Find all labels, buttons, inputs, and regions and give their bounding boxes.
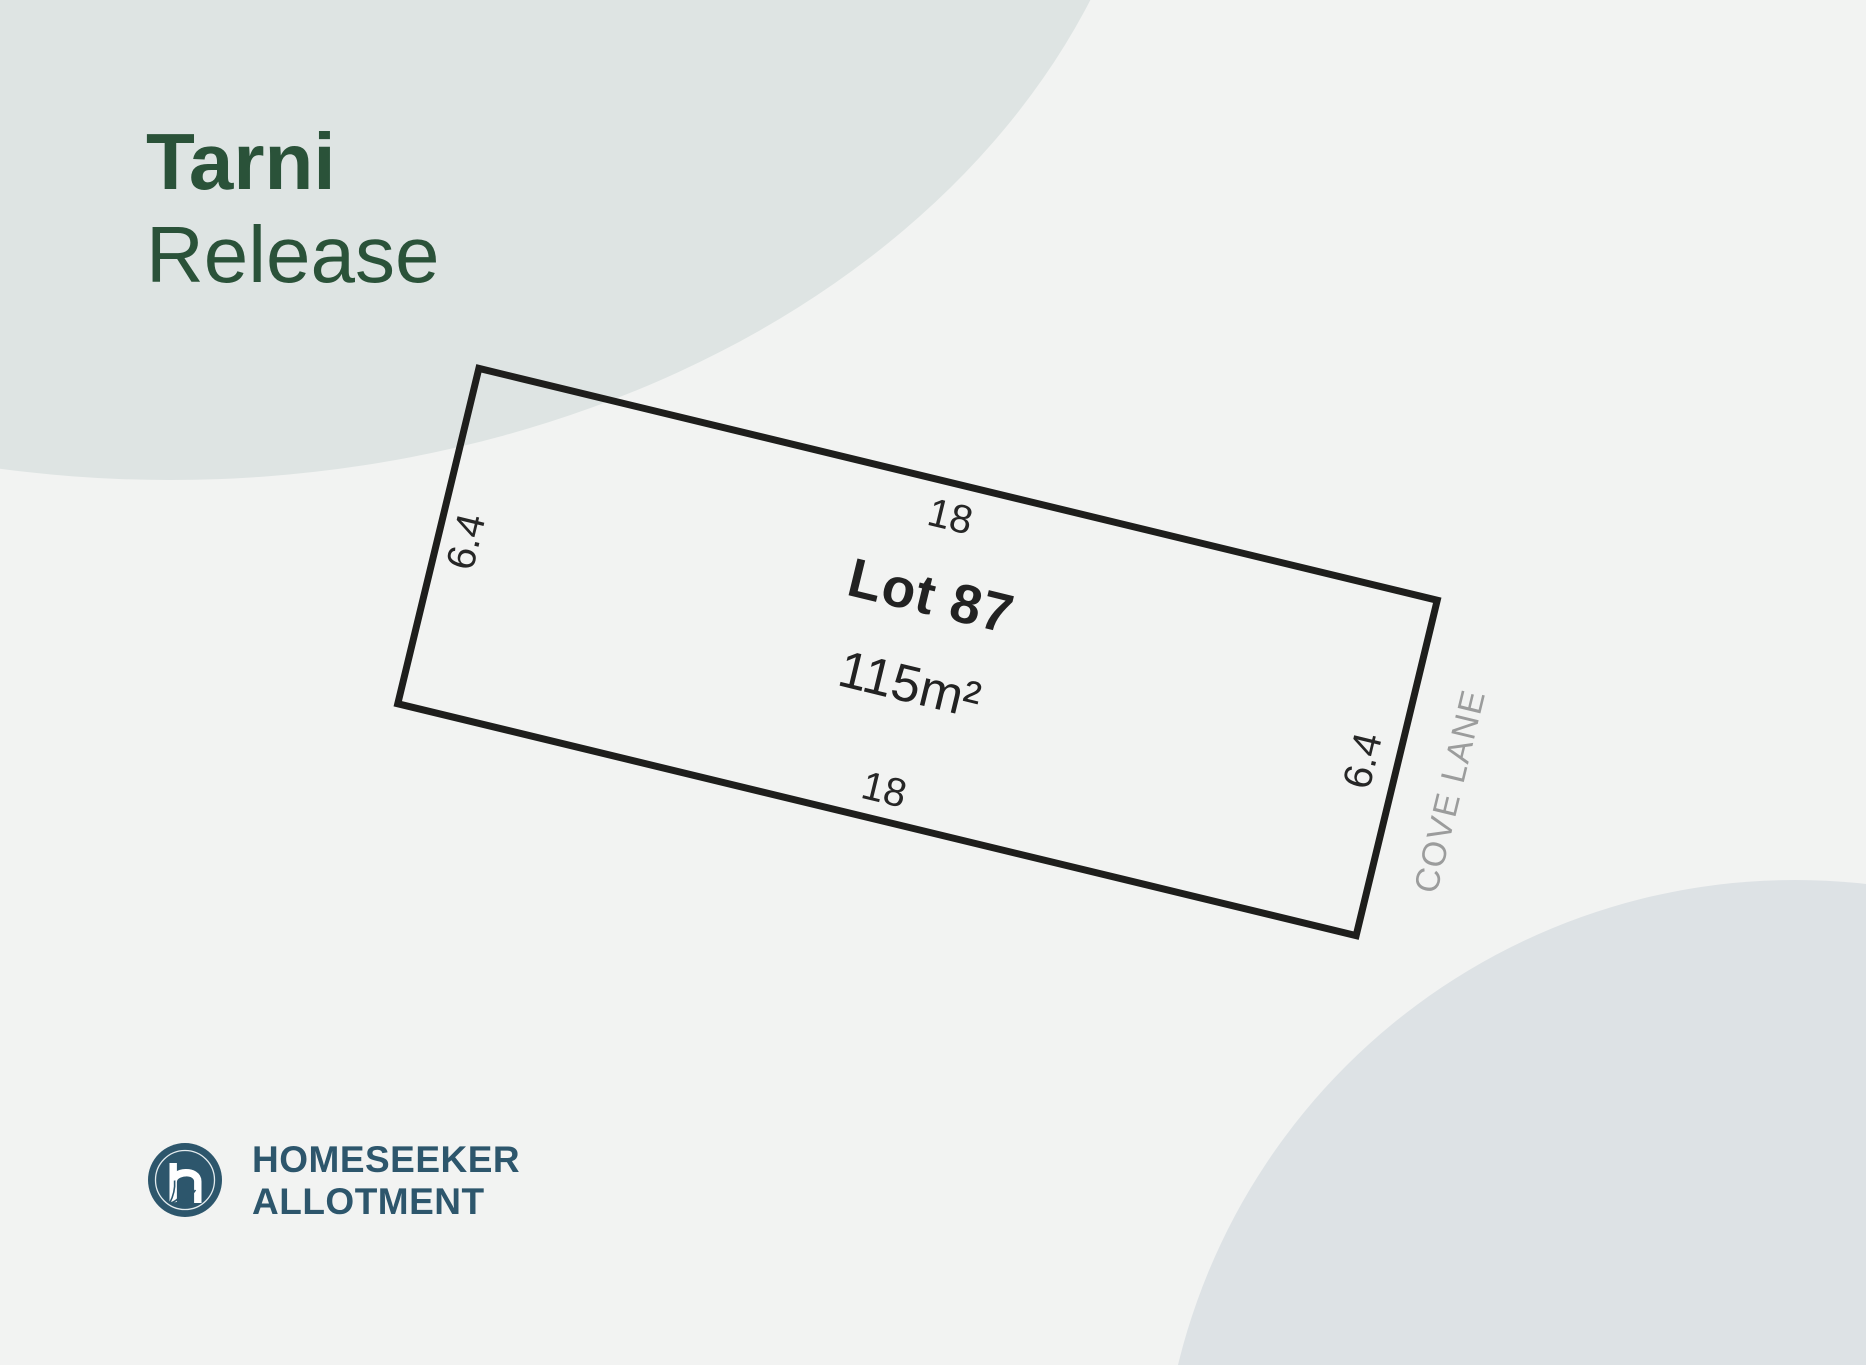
brand-name: HOMESEEKER ALLOTMENT (252, 1139, 520, 1223)
allotment-flyer: Tarni Release 18 Lot 87 115m² 18 6.4 6.4… (0, 0, 1866, 1365)
street-name-label: COVE LANE (1409, 686, 1491, 896)
lot-plan: 18 Lot 87 115m² 18 6.4 6.4 COVE LANE (394, 364, 1442, 940)
homeseeker-logo-icon (148, 1143, 222, 1217)
decorative-blob-bottom-right (1160, 880, 1866, 1365)
release-subtitle: Release (146, 208, 440, 301)
release-heading: Tarni Release (146, 115, 440, 301)
release-title: Tarni (146, 115, 440, 208)
brand-footer: HOMESEEKER ALLOTMENT (148, 1143, 520, 1223)
brand-name-line1: HOMESEEKER (252, 1139, 520, 1181)
brand-name-line2: ALLOTMENT (252, 1181, 520, 1223)
